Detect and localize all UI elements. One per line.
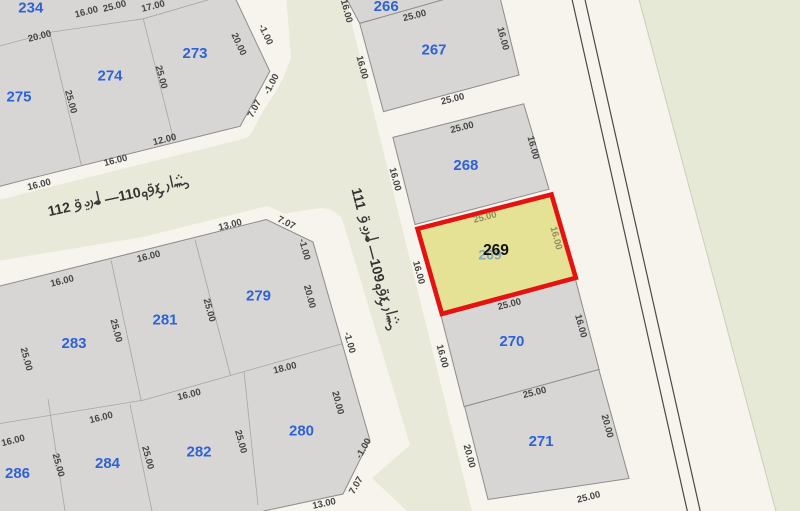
svg-text:234: 234 xyxy=(18,0,44,17)
svg-text:274: 274 xyxy=(97,68,123,85)
svg-text:280: 280 xyxy=(289,423,314,440)
svg-text:268: 268 xyxy=(453,157,478,174)
svg-text:266: 266 xyxy=(374,0,399,15)
svg-text:284: 284 xyxy=(95,455,121,472)
svg-text:275: 275 xyxy=(6,89,31,106)
svg-text:271: 271 xyxy=(529,433,554,450)
svg-text:267: 267 xyxy=(421,42,446,59)
svg-text:286: 286 xyxy=(5,465,30,482)
svg-text:273: 273 xyxy=(182,45,207,62)
svg-text:283: 283 xyxy=(61,335,86,352)
svg-text:269: 269 xyxy=(483,242,509,259)
svg-text:281: 281 xyxy=(152,312,177,329)
svg-text:282: 282 xyxy=(186,444,211,461)
svg-text:279: 279 xyxy=(246,288,271,305)
svg-text:270: 270 xyxy=(499,333,524,350)
